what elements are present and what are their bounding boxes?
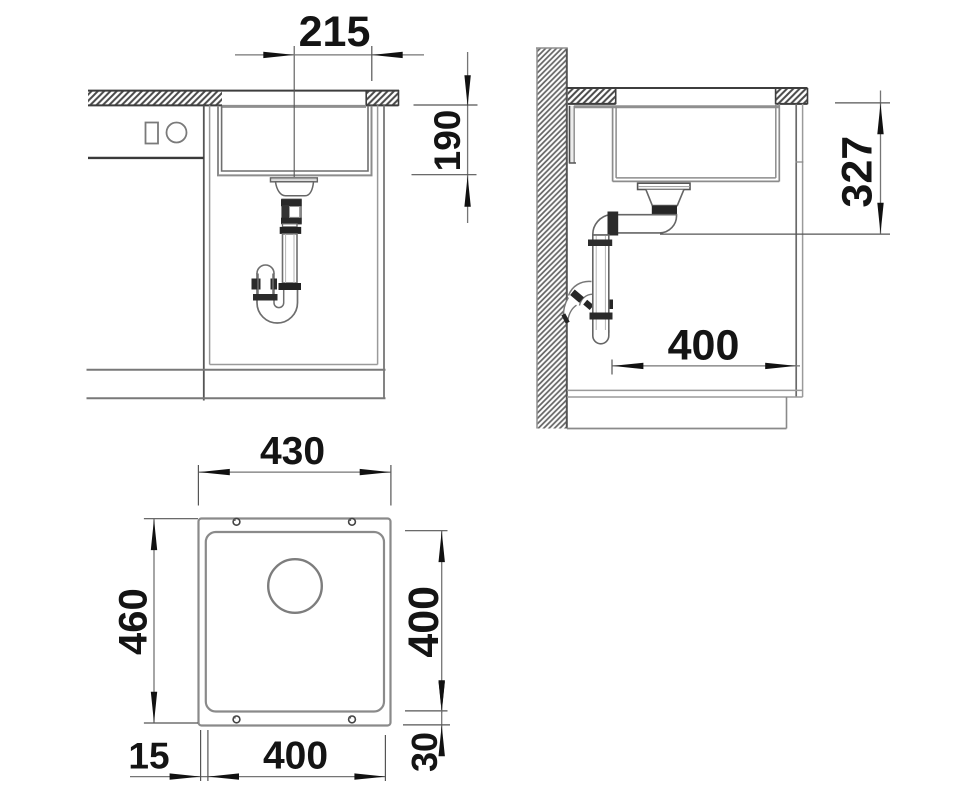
svg-text:400: 400 bbox=[668, 321, 740, 369]
svg-text:400: 400 bbox=[263, 735, 328, 778]
svg-text:15: 15 bbox=[128, 736, 169, 777]
svg-text:460: 460 bbox=[111, 588, 155, 655]
svg-text:30: 30 bbox=[404, 732, 445, 772]
svg-text:430: 430 bbox=[260, 430, 325, 473]
svg-text:327: 327 bbox=[833, 136, 881, 208]
svg-text:400: 400 bbox=[400, 586, 448, 658]
svg-text:215: 215 bbox=[299, 8, 371, 56]
svg-text:190: 190 bbox=[427, 110, 468, 172]
